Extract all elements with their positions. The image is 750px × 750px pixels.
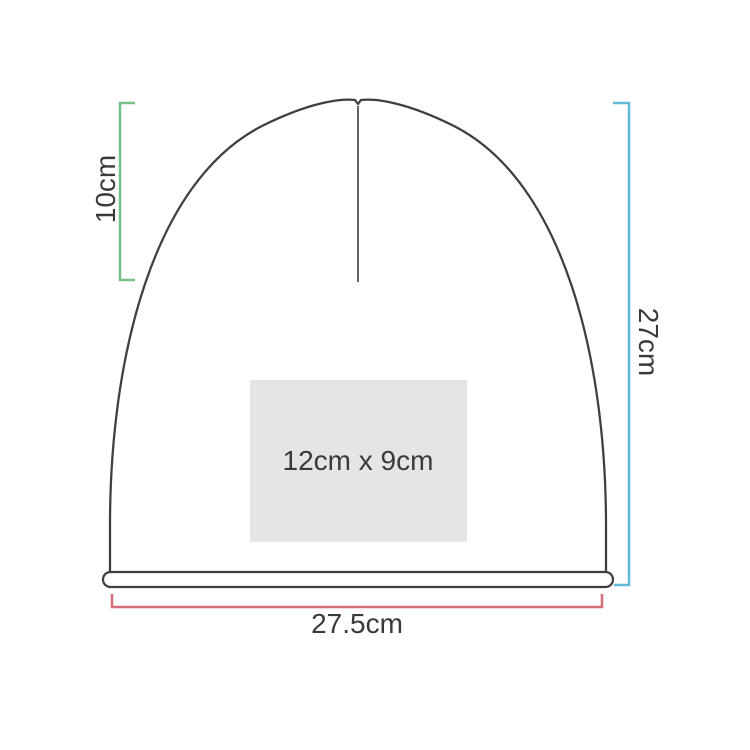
print-area-label: 12cm x 9cm bbox=[283, 447, 434, 475]
crown-height-label: 10cm bbox=[92, 155, 120, 223]
brim bbox=[103, 572, 613, 587]
total-height-bracket bbox=[613, 103, 629, 585]
width-bracket bbox=[112, 594, 602, 607]
total-height-label: 27cm bbox=[634, 308, 662, 376]
width-label: 27.5cm bbox=[311, 610, 403, 638]
beanie-dimension-diagram: 10cm 27cm 27.5cm 12cm x 9cm bbox=[0, 0, 750, 750]
crown-height-bracket bbox=[120, 103, 135, 280]
